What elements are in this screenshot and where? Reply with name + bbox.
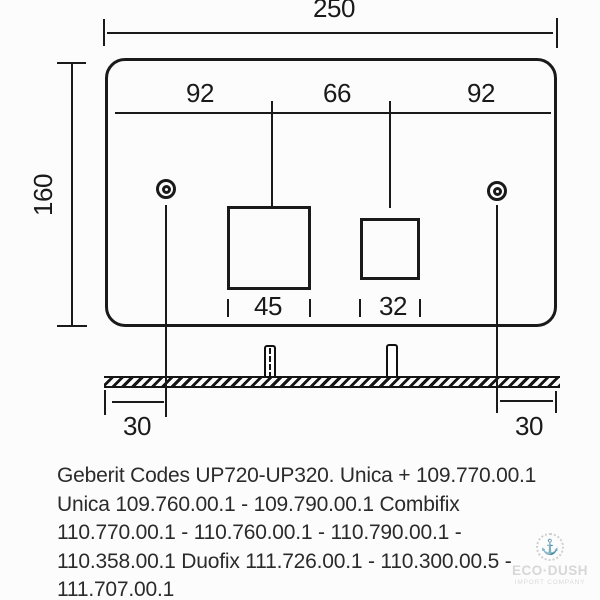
cutout-32-square bbox=[360, 218, 420, 280]
screw-hole-left-center-dot bbox=[162, 185, 171, 194]
dim-30-left-tick bbox=[104, 390, 106, 415]
screw-hole-left bbox=[156, 179, 176, 199]
dim-total-height-label: 160 bbox=[30, 174, 56, 216]
dim-total-height-line bbox=[71, 63, 73, 326]
dim-45-tick-right bbox=[309, 299, 311, 317]
dim-span-center-label: 66 bbox=[323, 80, 351, 106]
projection-line-left bbox=[165, 205, 167, 417]
dim-30-left-line bbox=[112, 401, 164, 403]
dim-offset-right-label: 30 bbox=[515, 413, 543, 439]
dim-total-width-label: 250 bbox=[313, 0, 355, 21]
dim-32-tick-right bbox=[419, 299, 421, 317]
cutout-45-square bbox=[227, 206, 311, 290]
dim-total-width-tick-left bbox=[103, 19, 105, 46]
dim-span-separator-right bbox=[389, 101, 391, 208]
code-line: Geberit Codes UP720-UP320. Unica + 109.7… bbox=[57, 462, 562, 491]
dim-span-left-label: 92 bbox=[186, 80, 214, 106]
dim-30-right-line bbox=[500, 400, 553, 402]
dim-total-width-line bbox=[107, 32, 553, 34]
technical-drawing-canvas: 250 160 92 66 92 45 32 30 30 ⚓ bbox=[0, 0, 600, 600]
code-line: Unica 109.760.00.1 - 109.790.00.1 Combif… bbox=[57, 491, 562, 520]
dim-total-height-tick-top bbox=[57, 62, 86, 64]
mounting-peg-left bbox=[264, 345, 276, 378]
screw-hole-right bbox=[487, 181, 507, 201]
dim-offset-left-label: 30 bbox=[123, 413, 151, 439]
dim-total-width-tick-right bbox=[556, 18, 558, 48]
code-line: 111.707.00.1 bbox=[57, 576, 562, 600]
projection-line-right bbox=[496, 205, 498, 413]
dim-span-line bbox=[115, 112, 551, 114]
code-line: 110.770.00.1 - 110.760.00.1 - 110.790.00… bbox=[57, 519, 562, 548]
product-codes-text: Geberit Codes UP720-UP320. Unica + 109.7… bbox=[57, 462, 562, 600]
cross-section-bar bbox=[104, 376, 560, 388]
dim-45-tick-left bbox=[227, 299, 229, 317]
dim-cutout-large-label: 45 bbox=[254, 293, 282, 319]
dim-cutout-small-label: 32 bbox=[379, 293, 407, 319]
dim-total-height-tick-bottom bbox=[57, 325, 87, 327]
mounting-peg-right bbox=[386, 344, 398, 378]
peg-centerline-dashed bbox=[269, 348, 271, 378]
dim-span-separator-left bbox=[271, 101, 273, 207]
dim-32-tick-left bbox=[359, 299, 361, 317]
dim-30-right-tick bbox=[555, 391, 557, 413]
dim-span-right-label: 92 bbox=[467, 80, 495, 106]
code-line: 110.358.00.1 Duofix 111.726.00.1 - 110.3… bbox=[57, 548, 562, 577]
screw-hole-right-center-dot bbox=[493, 187, 502, 196]
